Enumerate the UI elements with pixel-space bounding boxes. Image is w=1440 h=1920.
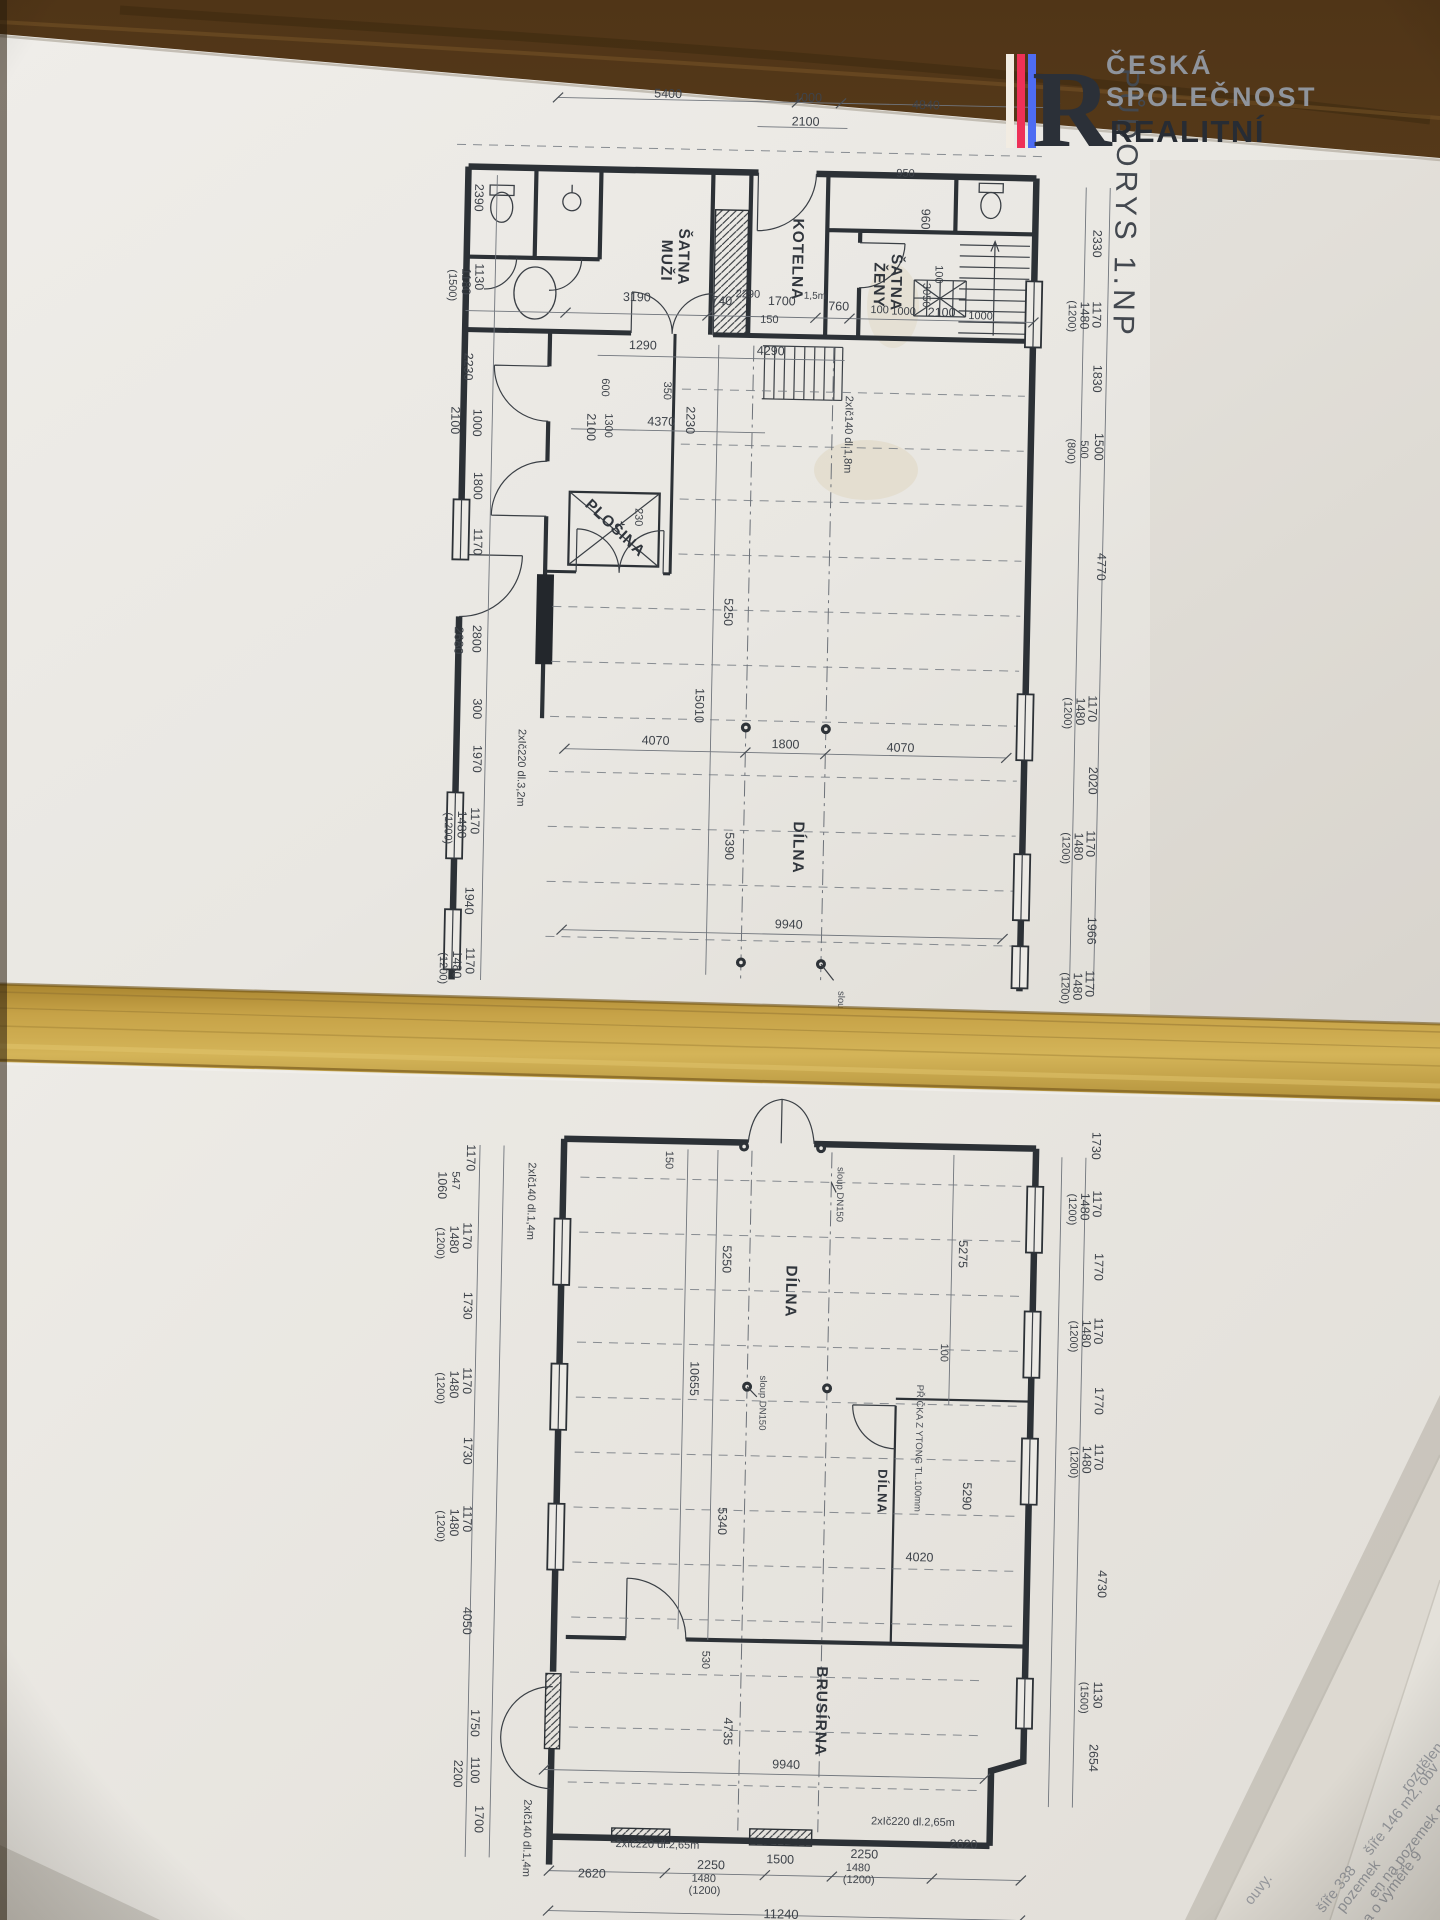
- logo-letter-r: R: [1032, 48, 1113, 170]
- logo-stripe-white: [1006, 54, 1014, 148]
- logo-stripe-red: [1017, 54, 1025, 148]
- logo-line2: SPOLEČNOST: [1106, 81, 1317, 112]
- logo-line1: ČESKÁ: [1106, 49, 1213, 80]
- photo-vignette: [0, 0, 1440, 1920]
- floor-plan-photo: 5400100021004840239011301180(1500)223010…: [0, 0, 1440, 1920]
- logo-line3: REALITNÍ: [1110, 114, 1265, 149]
